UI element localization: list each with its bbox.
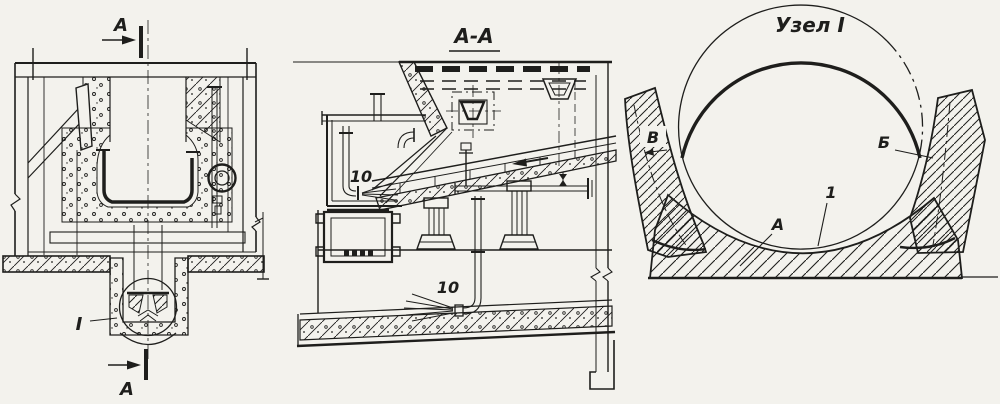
support-column-1	[417, 198, 455, 249]
floor-strip-left	[3, 256, 110, 272]
refractory-lining	[62, 128, 232, 222]
lining-surface-text: А	[770, 215, 784, 234]
right-wall	[575, 62, 614, 389]
label-gap-right: Б	[878, 133, 933, 158]
inclined-chute	[372, 136, 616, 210]
detail-callout-label: I	[76, 314, 83, 335]
section-cut-mark-bottom: А	[108, 349, 146, 400]
section-cut-label-bottom: А	[118, 379, 134, 400]
front-section-view: А	[3, 15, 269, 400]
label-shell: 1	[818, 183, 837, 246]
floor-strip-right	[188, 256, 264, 272]
sloped-refractory-band	[399, 62, 447, 136]
break-line-right	[252, 217, 260, 231]
section-aa-view: А-А	[293, 24, 616, 389]
detail-title: Узел I	[775, 13, 845, 37]
hopper-funnel	[446, 85, 501, 138]
section-title: А-А	[449, 24, 500, 51]
gap-right-text: Б	[878, 133, 890, 152]
detail-i-view: Узел I В	[625, 5, 998, 278]
nozzle-label-upper: 10	[350, 167, 372, 186]
left-wall-block	[625, 88, 706, 257]
gap-left-text: В	[647, 128, 659, 147]
upper-water-pipe: 10	[339, 94, 414, 200]
slag-box	[316, 210, 400, 262]
break-line-left	[11, 194, 20, 211]
drawing-sheet: А	[0, 0, 1000, 404]
section-cut-label-top: А	[112, 15, 128, 36]
inclined-floor	[297, 300, 615, 346]
right-wall-block	[910, 90, 985, 253]
technical-drawing: А	[0, 0, 1000, 404]
ball-sphere	[679, 5, 923, 249]
ceiling-slab	[293, 62, 612, 89]
shell-text: 1	[825, 183, 836, 202]
nozzle-label-lower: 10	[437, 278, 459, 297]
section-cut-mark-top: А	[102, 15, 141, 58]
section-title-text: А-А	[452, 24, 493, 48]
